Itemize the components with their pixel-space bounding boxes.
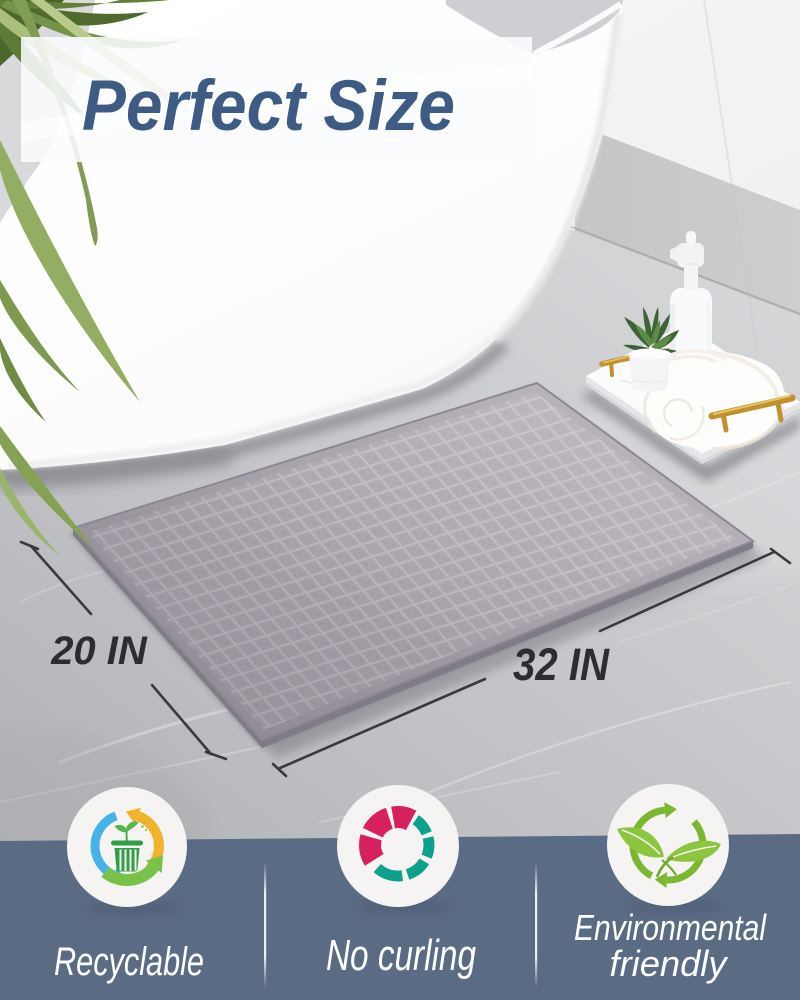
svg-text:20 IN: 20 IN	[50, 629, 148, 673]
svg-text:No curling: No curling	[326, 931, 476, 980]
svg-text:friendly: friendly	[610, 943, 729, 984]
svg-text:Recyclable: Recyclable	[54, 940, 204, 984]
svg-text:Perfect Size: Perfect Size	[82, 67, 455, 146]
svg-text:32 IN: 32 IN	[513, 639, 610, 690]
svg-text:Environmental: Environmental	[574, 907, 767, 948]
